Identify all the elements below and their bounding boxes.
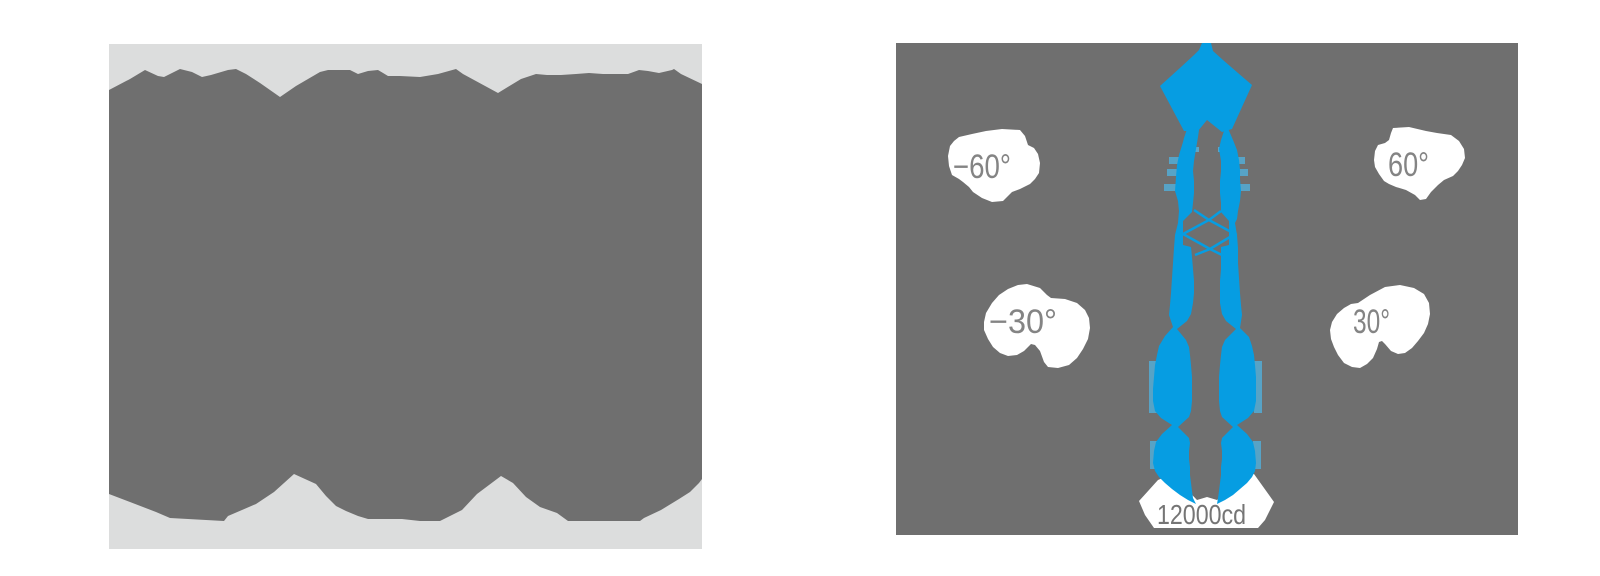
svg-text:30°: 30°: [1353, 303, 1390, 341]
svg-text:60°: 60°: [1388, 146, 1429, 184]
svg-text:−30°: −30°: [989, 303, 1057, 341]
svg-text:−60°: −60°: [953, 148, 1011, 186]
svg-text:12000cd: 12000cd: [1157, 499, 1246, 530]
